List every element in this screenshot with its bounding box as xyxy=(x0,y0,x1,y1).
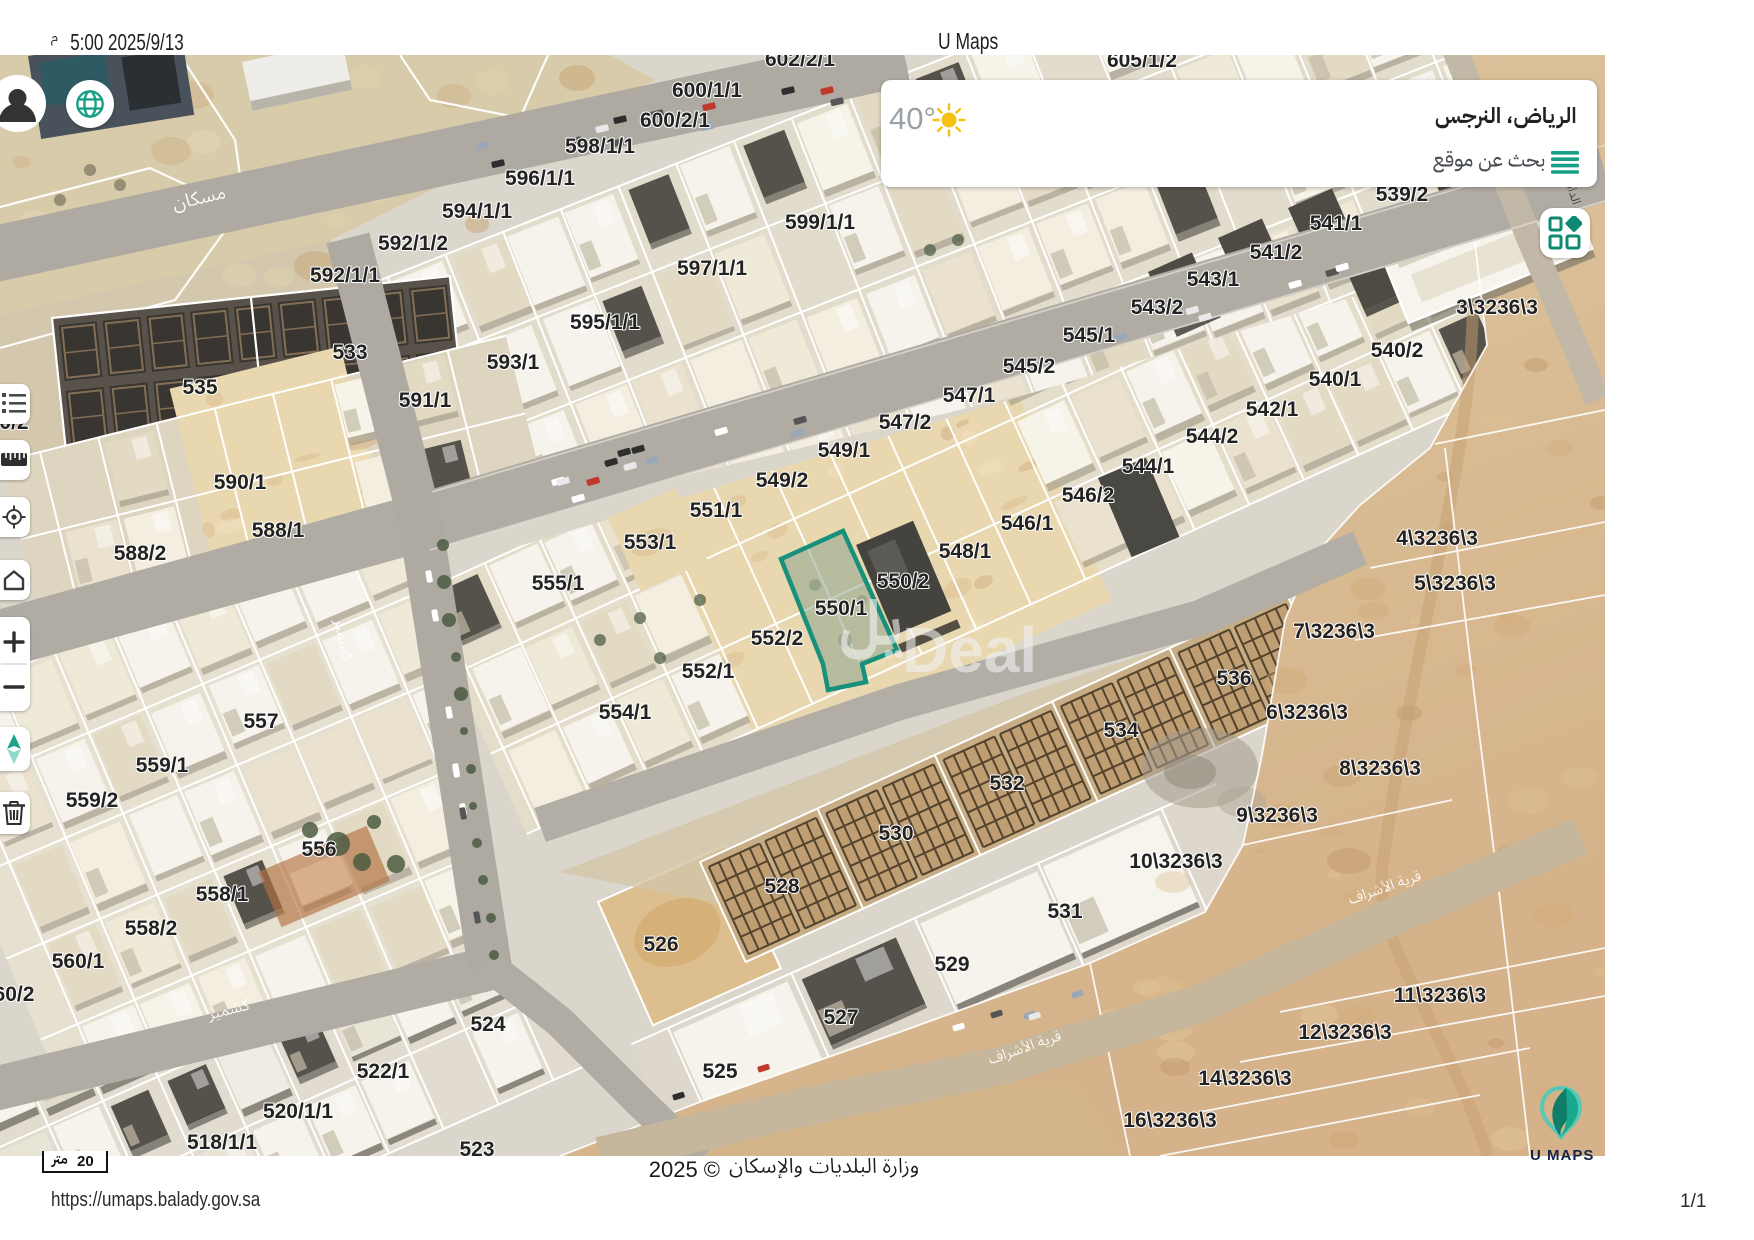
svg-text:544/1: 544/1 xyxy=(1122,455,1175,478)
svg-text:527: 527 xyxy=(823,1006,858,1029)
svg-text:7\3236\3: 7\3236\3 xyxy=(1293,620,1375,643)
svg-text:533: 533 xyxy=(332,341,367,364)
svg-text:546/2: 546/2 xyxy=(1062,484,1115,507)
svg-text:541/2: 541/2 xyxy=(1250,241,1303,264)
svg-text:531: 531 xyxy=(1047,900,1082,923)
svg-text:592/1/2: 592/1/2 xyxy=(378,232,448,255)
svg-text:20: 20 xyxy=(77,1153,94,1170)
svg-text:523: 523 xyxy=(459,1138,494,1156)
svg-text:12\3236\3: 12\3236\3 xyxy=(1298,1021,1391,1044)
svg-text:530: 530 xyxy=(878,822,913,845)
svg-text:549/2: 549/2 xyxy=(756,469,809,492)
svg-text:Deal: Deal xyxy=(902,614,1037,686)
svg-text:552/2: 552/2 xyxy=(751,627,804,650)
svg-text:594/1/1: 594/1/1 xyxy=(442,200,512,223)
svg-text:555/1: 555/1 xyxy=(532,572,585,595)
svg-text:599/1/1: 599/1/1 xyxy=(785,211,855,234)
svg-text:16\3236\3: 16\3236\3 xyxy=(1123,1109,1216,1132)
svg-text:540/2: 540/2 xyxy=(1371,339,1424,362)
svg-text:60/2: 60/2 xyxy=(0,983,34,1006)
svg-text:542/1: 542/1 xyxy=(1246,398,1299,421)
svg-text:11\3236\3: 11\3236\3 xyxy=(1394,984,1486,1007)
svg-text:545/2: 545/2 xyxy=(1003,355,1056,378)
svg-text:545/1: 545/1 xyxy=(1063,324,1116,347)
svg-text:593/1: 593/1 xyxy=(487,351,540,374)
svg-text:605/1/2: 605/1/2 xyxy=(1107,55,1177,72)
svg-text:541/1: 541/1 xyxy=(1310,212,1363,235)
svg-text:550/1: 550/1 xyxy=(815,597,868,620)
svg-text:558/1: 558/1 xyxy=(196,883,249,906)
svg-text:543/2: 543/2 xyxy=(1131,296,1184,319)
svg-text:556: 556 xyxy=(301,838,336,861)
svg-text:4\3236\3: 4\3236\3 xyxy=(1396,527,1478,550)
svg-text:5:00 2025/9/13: 5:00 2025/9/13 xyxy=(70,31,184,56)
svg-text:532: 532 xyxy=(989,772,1024,795)
svg-text:551/1: 551/1 xyxy=(690,499,743,522)
svg-text:3\3236\3: 3\3236\3 xyxy=(1456,296,1538,319)
svg-text:550/2: 550/2 xyxy=(877,570,930,593)
svg-text:553/1: 553/1 xyxy=(624,531,677,554)
svg-text:526: 526 xyxy=(643,933,678,956)
svg-text:529: 529 xyxy=(934,953,969,976)
svg-text:536: 536 xyxy=(1216,667,1251,690)
svg-text:552/1: 552/1 xyxy=(682,660,735,683)
svg-text:560/1: 560/1 xyxy=(52,950,105,973)
svg-text:524: 524 xyxy=(470,1013,505,1036)
svg-text:14\3236\3: 14\3236\3 xyxy=(1198,1067,1291,1090)
svg-text:558/2: 558/2 xyxy=(125,917,178,940)
svg-text:549/1: 549/1 xyxy=(818,439,871,462)
svg-text:522/1: 522/1 xyxy=(357,1060,410,1083)
svg-text:559/1: 559/1 xyxy=(136,754,189,777)
svg-text:540/1: 540/1 xyxy=(1309,368,1362,391)
svg-text:591/1: 591/1 xyxy=(399,389,452,412)
svg-text:590/1: 590/1 xyxy=(214,471,267,494)
svg-text:10\3236\3: 10\3236\3 xyxy=(1129,850,1222,873)
svg-text:600/1/1: 600/1/1 xyxy=(672,79,742,102)
svg-text:597/1/1: 597/1/1 xyxy=(677,257,747,280)
svg-text:520/1/1: 520/1/1 xyxy=(263,1100,333,1123)
svg-text:2025 ©: 2025 © xyxy=(649,1157,720,1182)
svg-text:554/1: 554/1 xyxy=(599,701,652,724)
svg-text:544/2: 544/2 xyxy=(1186,425,1239,448)
svg-text:592/1/1: 592/1/1 xyxy=(310,264,380,287)
svg-text:6\3236\3: 6\3236\3 xyxy=(1266,701,1348,724)
svg-text:598/1/1: 598/1/1 xyxy=(565,135,635,158)
svg-text:534: 534 xyxy=(1103,719,1138,742)
svg-text:518/1/1: 518/1/1 xyxy=(187,1131,257,1154)
svg-text:596/1/1: 596/1/1 xyxy=(505,167,575,190)
svg-text:559/2: 559/2 xyxy=(66,789,119,812)
svg-text:525: 525 xyxy=(702,1060,737,1083)
svg-text:546/1: 546/1 xyxy=(1001,512,1054,535)
svg-text:535: 535 xyxy=(182,376,217,399)
svg-text:528: 528 xyxy=(764,875,799,898)
svg-text:557: 557 xyxy=(243,710,278,733)
svg-text:548/1: 548/1 xyxy=(939,540,992,563)
svg-text:588/1: 588/1 xyxy=(252,519,305,542)
svg-text:547/2: 547/2 xyxy=(879,411,932,434)
svg-text:543/1: 543/1 xyxy=(1187,268,1240,291)
svg-text:602/2/1: 602/2/1 xyxy=(765,55,835,71)
svg-text:9\3236\3: 9\3236\3 xyxy=(1236,804,1318,827)
svg-text:600/2/1: 600/2/1 xyxy=(640,109,710,132)
svg-text:595/1/1: 595/1/1 xyxy=(570,311,640,334)
svg-text:588/2: 588/2 xyxy=(114,542,167,565)
svg-text:8\3236\3: 8\3236\3 xyxy=(1339,757,1421,780)
svg-text:U MAPS: U MAPS xyxy=(1530,1147,1594,1164)
svg-text:547/1: 547/1 xyxy=(943,384,996,407)
svg-text:5\3236\3: 5\3236\3 xyxy=(1414,572,1496,595)
